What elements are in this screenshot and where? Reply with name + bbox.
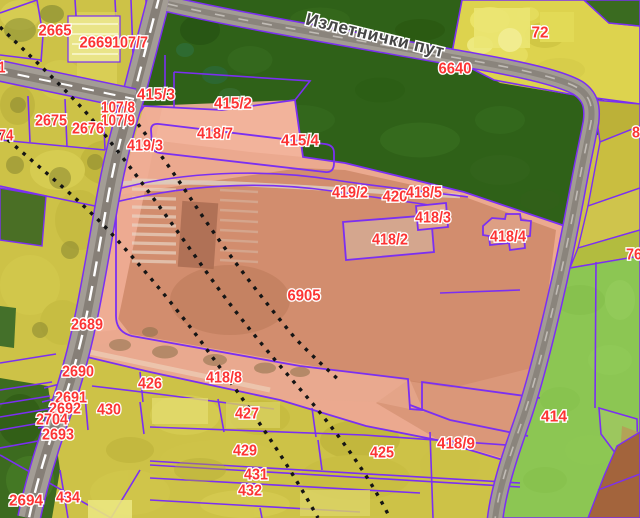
svg-text:2689: 2689: [71, 317, 103, 334]
svg-text:429: 429: [233, 443, 257, 460]
svg-text:2693: 2693: [42, 427, 74, 444]
svg-text:2690: 2690: [62, 364, 94, 381]
svg-text:418/7: 418/7: [197, 126, 233, 143]
svg-text:418/9: 418/9: [437, 436, 475, 453]
svg-text:74: 74: [0, 128, 14, 145]
svg-text:6905: 6905: [288, 288, 321, 305]
svg-text:2669: 2669: [80, 35, 113, 52]
svg-text:419/2: 419/2: [332, 185, 368, 202]
svg-text:2675: 2675: [35, 113, 67, 130]
svg-text:415/2: 415/2: [214, 96, 252, 113]
svg-text:427: 427: [235, 406, 259, 423]
svg-text:2694: 2694: [9, 493, 43, 510]
svg-text:1: 1: [0, 60, 6, 77]
svg-text:418/4: 418/4: [490, 229, 526, 246]
svg-text:415/4: 415/4: [281, 133, 319, 150]
svg-text:418/2: 418/2: [372, 232, 408, 249]
svg-text:414: 414: [541, 409, 567, 426]
svg-text:107/7: 107/7: [112, 35, 148, 52]
svg-text:418/8: 418/8: [206, 370, 242, 387]
svg-text:415/3: 415/3: [137, 87, 175, 104]
svg-text:2676: 2676: [72, 121, 104, 138]
svg-text:418/3: 418/3: [415, 210, 451, 227]
svg-text:425: 425: [370, 445, 394, 462]
svg-text:431: 431: [244, 467, 268, 484]
svg-text:72: 72: [532, 25, 549, 42]
svg-text:420: 420: [383, 189, 408, 206]
svg-text:434: 434: [56, 490, 80, 507]
svg-text:107/9: 107/9: [101, 113, 135, 130]
svg-text:418/5: 418/5: [406, 185, 442, 202]
svg-text:426: 426: [138, 376, 162, 393]
svg-text:76: 76: [626, 247, 640, 264]
svg-text:6640: 6640: [439, 61, 472, 78]
svg-text:8: 8: [632, 125, 640, 142]
svg-text:430: 430: [97, 402, 121, 419]
svg-text:419/3: 419/3: [127, 138, 163, 155]
svg-text:432: 432: [238, 483, 262, 500]
svg-text:2665: 2665: [39, 23, 72, 40]
